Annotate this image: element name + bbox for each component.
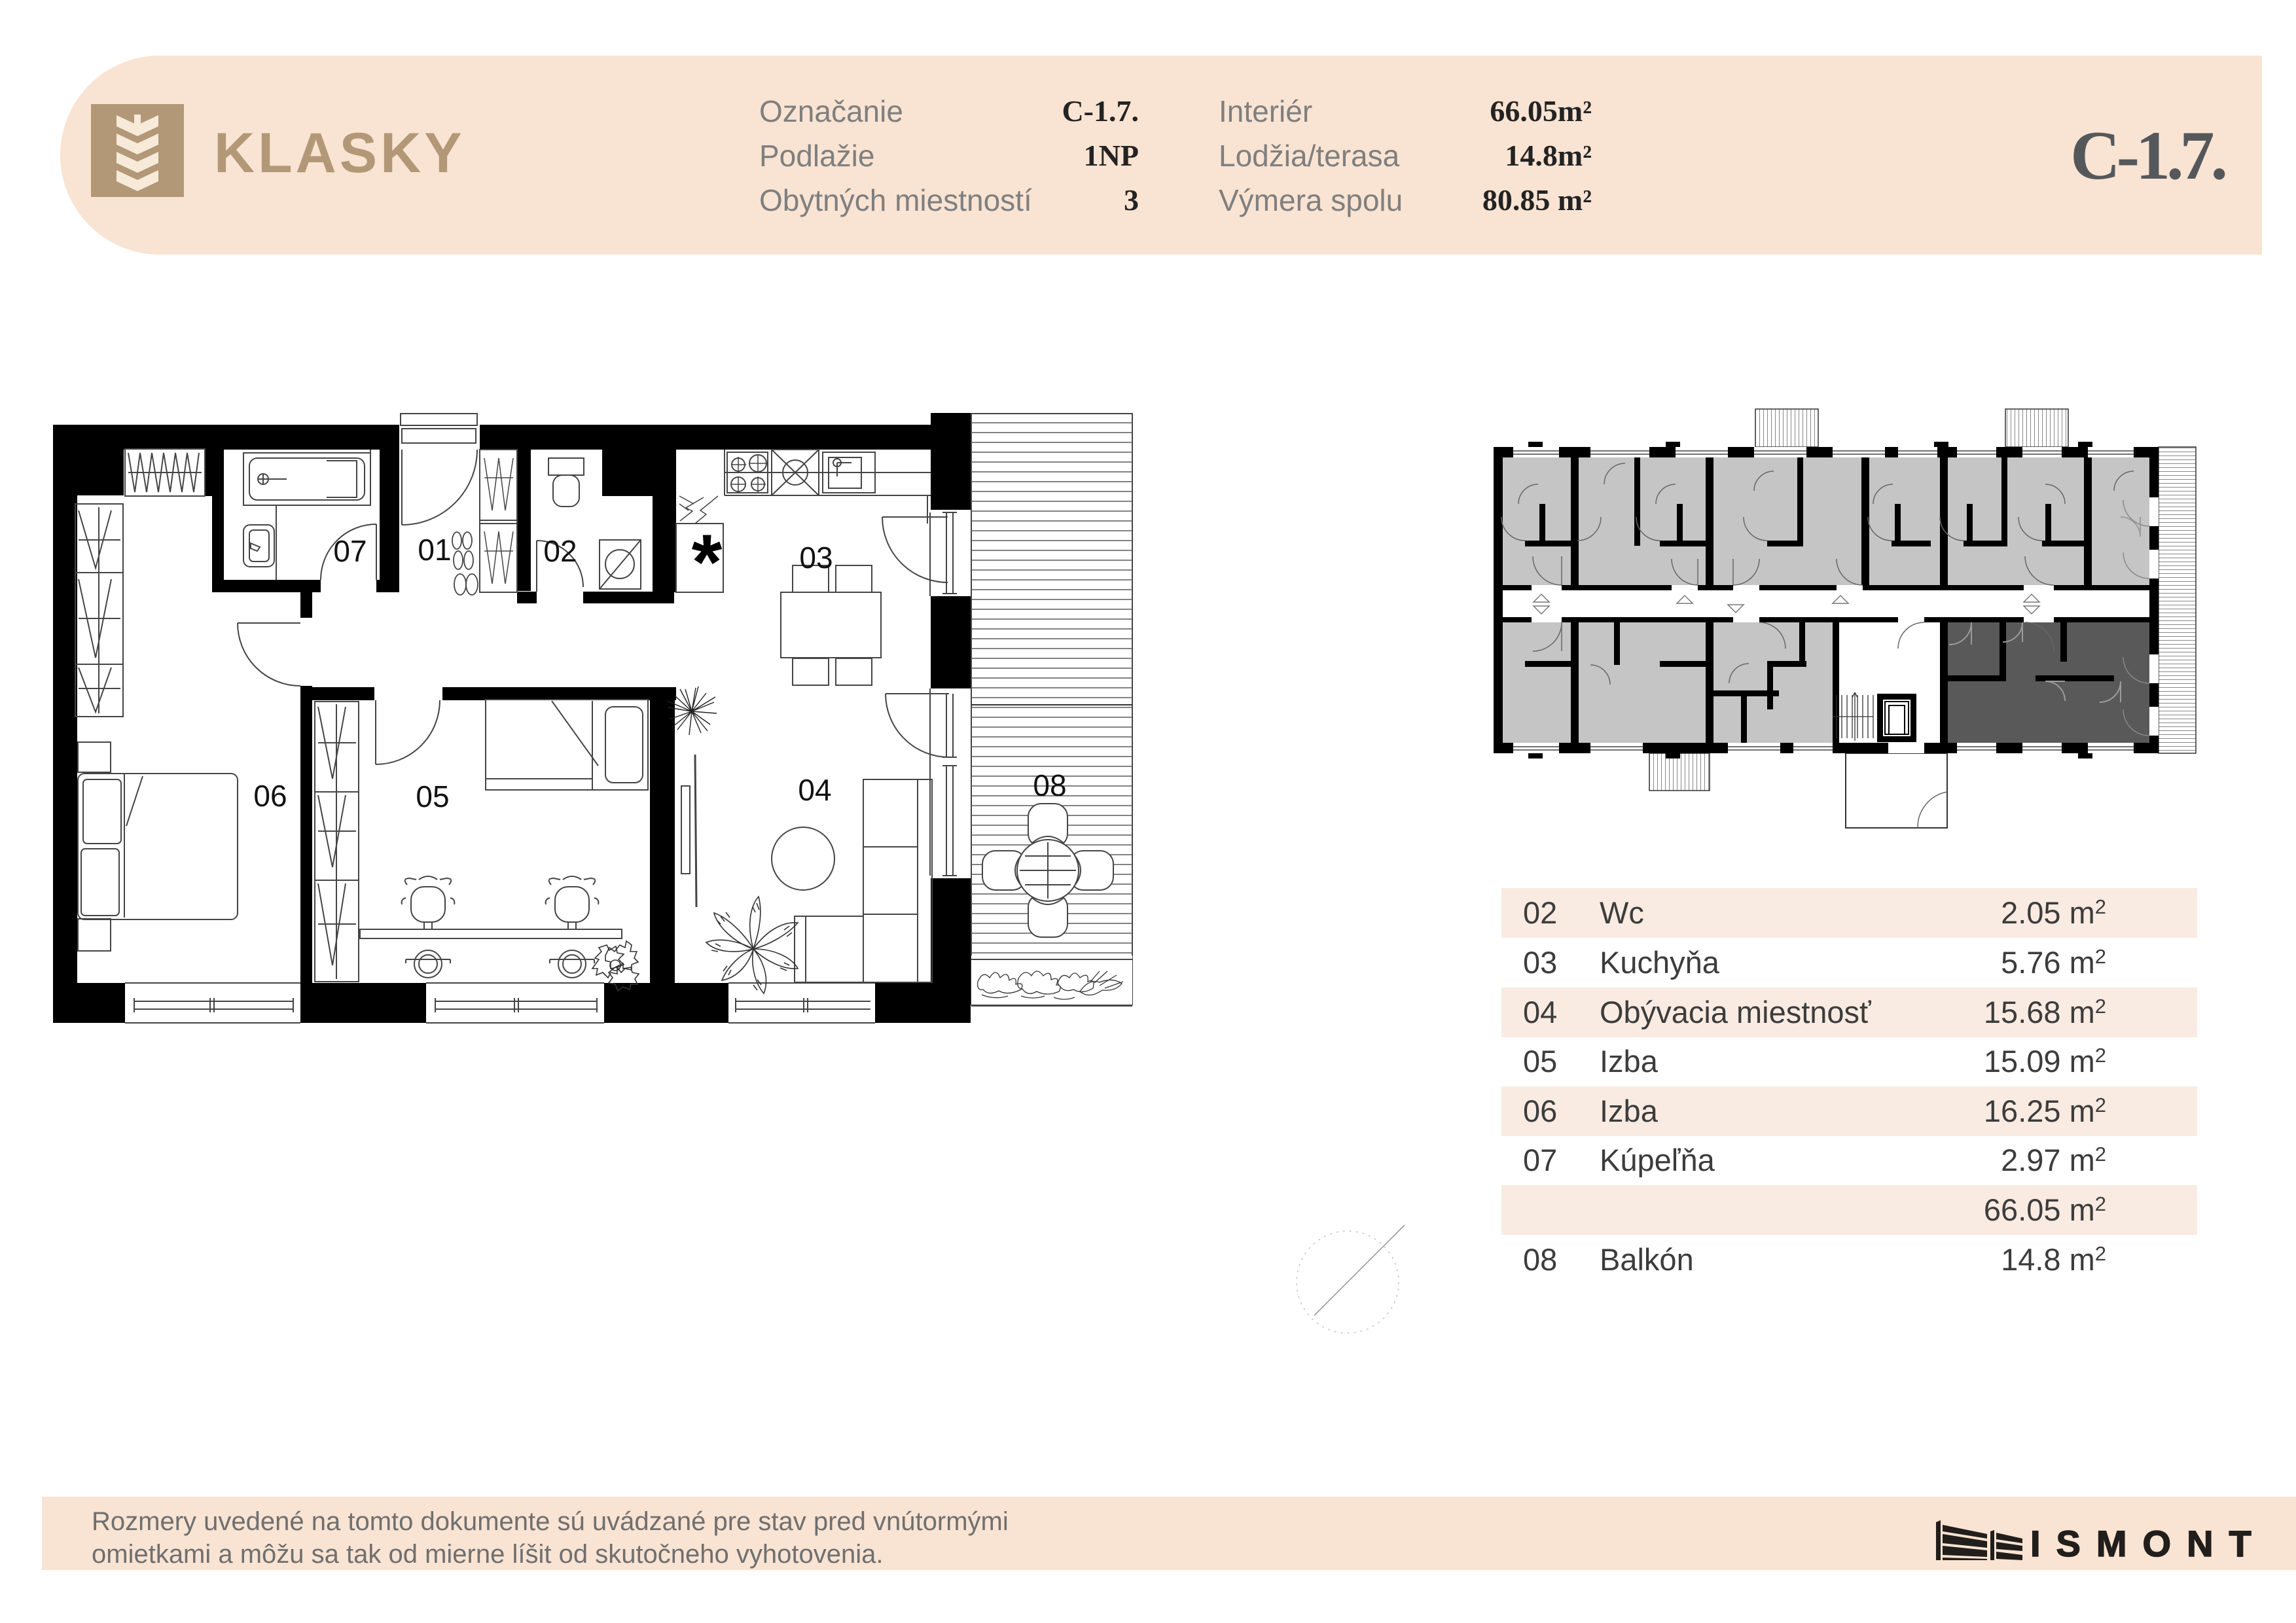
svg-text:05: 05 bbox=[416, 779, 449, 813]
svg-text:04: 04 bbox=[798, 773, 831, 807]
svg-text:08: 08 bbox=[1033, 768, 1066, 802]
svg-text:06: 06 bbox=[253, 779, 287, 813]
svg-text:02: 02 bbox=[543, 534, 577, 568]
svg-text:03: 03 bbox=[799, 541, 833, 575]
svg-text:07: 07 bbox=[333, 534, 367, 568]
svg-text:*: * bbox=[692, 518, 723, 606]
svg-text:01: 01 bbox=[418, 533, 451, 567]
